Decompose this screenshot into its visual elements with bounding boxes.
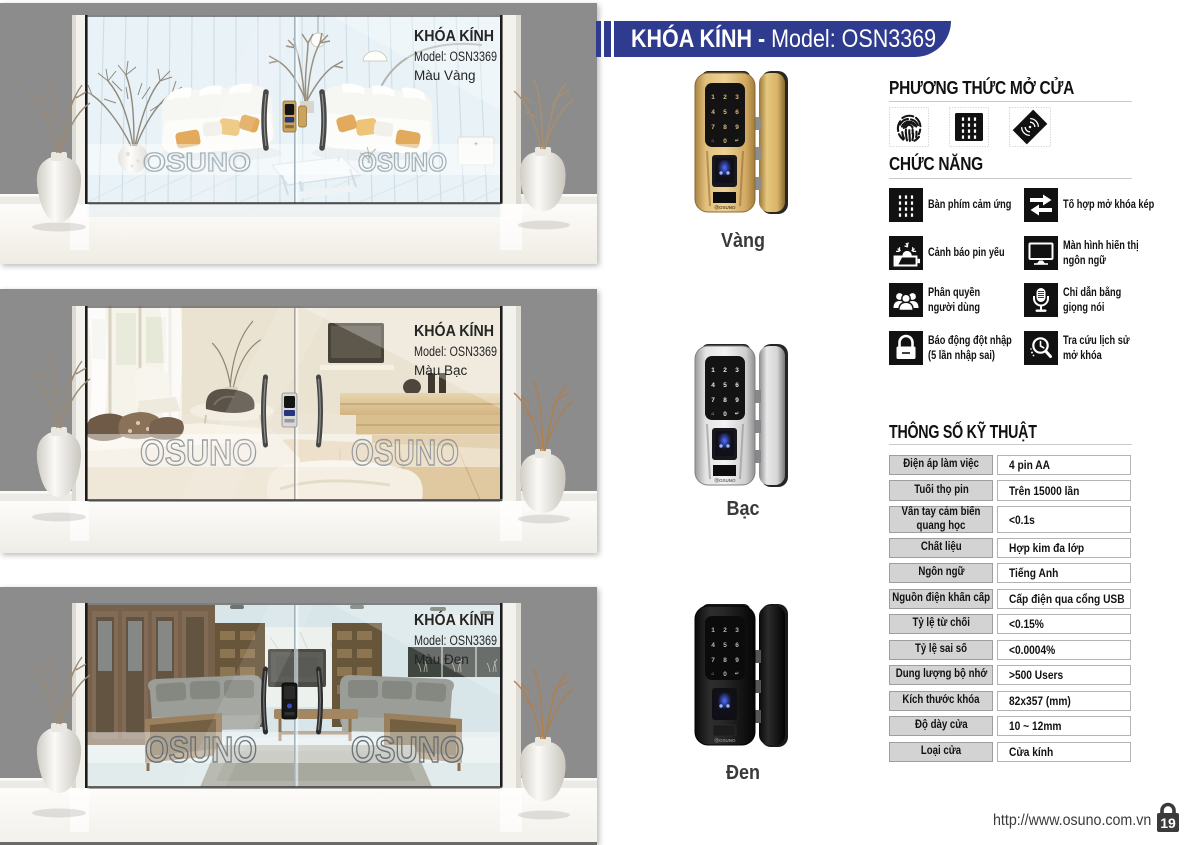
svg-text:8: 8 <box>723 397 727 404</box>
svg-text:4: 4 <box>711 109 715 116</box>
svg-text:↵: ↵ <box>735 138 739 144</box>
svg-text:7: 7 <box>711 657 715 664</box>
svg-text:0: 0 <box>723 671 727 678</box>
svg-text:6: 6 <box>735 642 739 649</box>
svg-text:4: 4 <box>711 382 715 389</box>
svg-text:↵: ↵ <box>735 411 739 417</box>
svg-text:Màu Vàng: Màu Vàng <box>414 68 476 83</box>
svg-text:Model: OSN3369: Model: OSN3369 <box>414 49 497 64</box>
svg-text:6: 6 <box>735 109 739 116</box>
svg-text:3: 3 <box>735 94 739 101</box>
svg-text:OSUNO: OSUNO <box>358 147 447 177</box>
svg-text:2: 2 <box>723 94 727 101</box>
svg-text:6: 6 <box>735 382 739 389</box>
svg-text:8: 8 <box>723 657 727 664</box>
svg-text:ⓄOSUNO: ⓄOSUNO <box>714 477 736 484</box>
svg-text:1: 1 <box>711 627 715 634</box>
svg-text:2: 2 <box>723 627 727 634</box>
svg-text:KHÓA KÍNH: KHÓA KÍNH <box>414 321 494 340</box>
svg-text:KHÓA KÍNH: KHÓA KÍNH <box>414 610 494 629</box>
svg-text:1: 1 <box>711 94 715 101</box>
svg-text:2: 2 <box>723 367 727 374</box>
svg-text:4: 4 <box>711 642 715 649</box>
svg-text:8: 8 <box>723 124 727 131</box>
svg-text:3: 3 <box>735 627 739 634</box>
svg-text:↵: ↵ <box>735 671 739 677</box>
svg-text:0: 0 <box>723 411 727 418</box>
svg-text:ⓄOSUNO: ⓄOSUNO <box>714 204 736 211</box>
svg-text:ⓄOSUNO: ⓄOSUNO <box>714 737 736 744</box>
svg-text:Màu Đen: Màu Đen <box>414 652 469 667</box>
svg-text:9: 9 <box>735 657 739 664</box>
svg-text:9: 9 <box>735 397 739 404</box>
svg-text:Model: OSN3369: Model: OSN3369 <box>414 344 497 359</box>
svg-text:3: 3 <box>735 367 739 374</box>
svg-text:Model: OSN3369: Model: OSN3369 <box>414 633 497 648</box>
svg-text:19: 19 <box>1160 815 1176 831</box>
svg-text:5: 5 <box>723 382 727 389</box>
svg-text:⌂: ⌂ <box>711 411 714 417</box>
svg-text:5: 5 <box>723 109 727 116</box>
svg-text:OSUNO: OSUNO <box>351 432 459 473</box>
svg-text:⌂: ⌂ <box>711 138 714 144</box>
svg-text:5: 5 <box>723 642 727 649</box>
svg-text:KHÓA KÍNH: KHÓA KÍNH <box>414 26 494 45</box>
svg-text:7: 7 <box>711 397 715 404</box>
svg-text:OSUNO: OSUNO <box>351 729 464 770</box>
svg-text:1: 1 <box>711 367 715 374</box>
svg-text:9: 9 <box>735 124 739 131</box>
svg-text:⌂: ⌂ <box>711 671 714 677</box>
svg-text:0: 0 <box>723 138 727 145</box>
svg-text:7: 7 <box>711 124 715 131</box>
svg-text:Màu Bạc: Màu Bạc <box>414 363 468 378</box>
